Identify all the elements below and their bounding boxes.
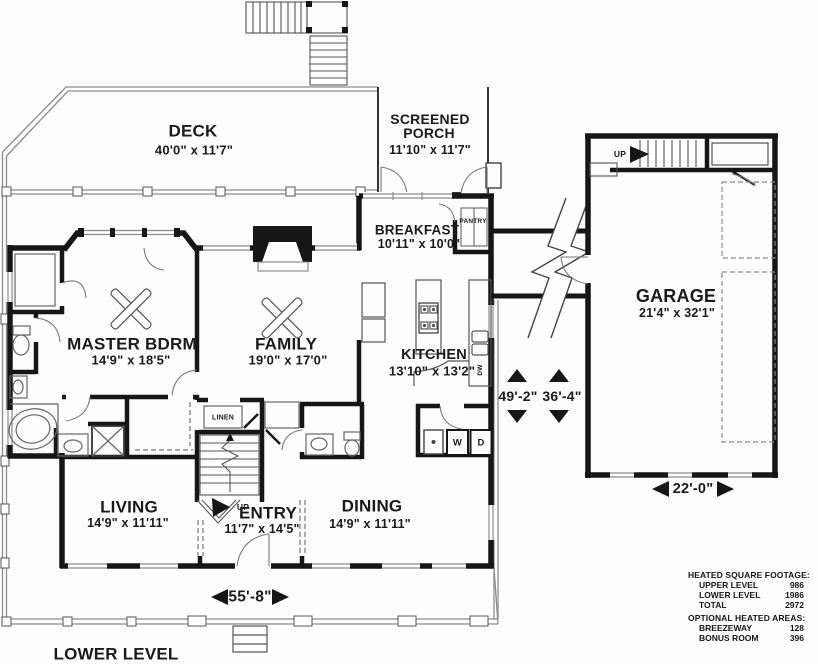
powder-room-fixtures	[306, 432, 360, 456]
screened-porch-doors	[381, 167, 487, 193]
deck-stairs	[246, 1, 348, 85]
room-dims-deck: 40'0" x 11'7"	[155, 144, 233, 157]
sqft-value: 396	[790, 633, 812, 643]
dimension-house-width: 55'-8"	[228, 589, 271, 605]
pantry-shelf	[461, 208, 487, 246]
sqft-label: BREEZEWAY	[699, 623, 752, 633]
room-dims-entry: 11'7" x 14'5"	[224, 523, 299, 536]
heated-footage-title: HEATED SQUARE FOOTAGE:	[688, 570, 812, 580]
label-linen: LINEN	[212, 415, 234, 422]
front-steps	[233, 626, 267, 652]
label-up-garage: UP	[614, 150, 626, 159]
room-label-living: LIVING	[100, 499, 158, 516]
optional-areas-title: OPTIONAL HEATED AREAS:	[688, 613, 812, 623]
square-footage-table: HEATED SQUARE FOOTAGE: UPPER LEVEL 986 L…	[688, 570, 812, 643]
sqft-label: BONUS ROOM	[699, 633, 759, 643]
sqft-value: 2972	[785, 600, 812, 610]
dimension-overall-depth: 36'-4"	[542, 389, 581, 403]
garage-closet	[712, 143, 768, 185]
room-dims-family: 19'0" x 17'0"	[249, 354, 328, 367]
room-dims-breakfast: 10'11" x 10'0"	[378, 238, 460, 251]
floor-plan-drawing	[0, 0, 818, 664]
breezeway-break-symbol	[528, 198, 589, 338]
room-dims-master-bdrm: 14'9" x 18'5"	[92, 354, 171, 367]
ceiling-fan-master	[110, 288, 152, 330]
garage-storage-dashed	[722, 182, 775, 442]
sqft-value: 128	[790, 623, 812, 633]
floor-plan-page: DECK 40'0" x 11'7" SCREENED PORCH 11'10"…	[0, 0, 818, 664]
room-label-master-bdrm: MASTER BDRM	[67, 336, 197, 353]
garage-windows	[610, 470, 752, 480]
room-label-pantry: PANTRY	[459, 219, 486, 226]
dimension-garage-width: 22'-0"	[673, 482, 714, 497]
room-label-deck: DECK	[169, 123, 218, 140]
label-dryer: D	[477, 438, 484, 448]
room-dims-kitchen: 13'10" x 13'2"	[389, 365, 475, 378]
label-up-entry: UP	[237, 503, 249, 512]
room-dims-screened-porch: 11'10" x 11'7"	[389, 144, 471, 157]
dimension-overall-width: 49'-2"	[498, 389, 537, 403]
arrow-up-width	[507, 369, 527, 382]
ceiling-fan-family	[261, 297, 303, 339]
level-title: LOWER LEVEL	[54, 646, 179, 663]
linen-closet	[204, 402, 299, 444]
room-label-garage: GARAGE	[636, 287, 716, 305]
arrow-down-depth	[549, 410, 569, 423]
arrow-right-garage	[717, 481, 734, 497]
fireplace	[253, 226, 312, 271]
room-label-screened-porch-2: PORCH	[403, 126, 455, 140]
room-label-screened-porch-1: SCREENED	[390, 112, 469, 126]
sqft-label: UPPER LEVEL	[699, 580, 758, 590]
room-label-kitchen: KITCHEN	[401, 348, 467, 363]
label-washer: W	[453, 438, 462, 448]
arrow-up-depth	[549, 369, 569, 382]
room-dims-garage: 21'4" x 32'1"	[639, 307, 715, 320]
label-dishwasher: DW	[478, 364, 485, 375]
room-label-dining: DINING	[342, 498, 403, 515]
sqft-label: LOWER LEVEL	[699, 590, 760, 600]
room-dims-dining: 14'9" x 11'11"	[329, 518, 411, 531]
sqft-row-total: TOTAL 2972	[688, 600, 812, 610]
sqft-row-breezeway: BREEZEWAY 128	[688, 623, 812, 633]
up-arrow-entry	[212, 498, 230, 517]
sqft-row-upper-level: UPPER LEVEL 986	[688, 580, 812, 590]
arrow-left-garage	[652, 481, 669, 497]
room-dims-living: 14'9" x 11'11"	[87, 517, 169, 530]
sqft-value: 986	[790, 580, 812, 590]
room-label-breakfast: BREAKFAST	[375, 223, 459, 237]
sqft-value: 1986	[785, 590, 812, 600]
room-label-family: FAMILY	[255, 336, 317, 353]
sqft-row-lower-level: LOWER LEVEL 1986	[688, 590, 812, 600]
arrow-right-house	[272, 589, 289, 605]
sqft-row-bonus-room: BONUS ROOM 396	[688, 633, 812, 643]
sqft-label: TOTAL	[699, 600, 727, 610]
arrow-down-width	[507, 410, 527, 423]
arrow-left-house	[211, 589, 228, 605]
